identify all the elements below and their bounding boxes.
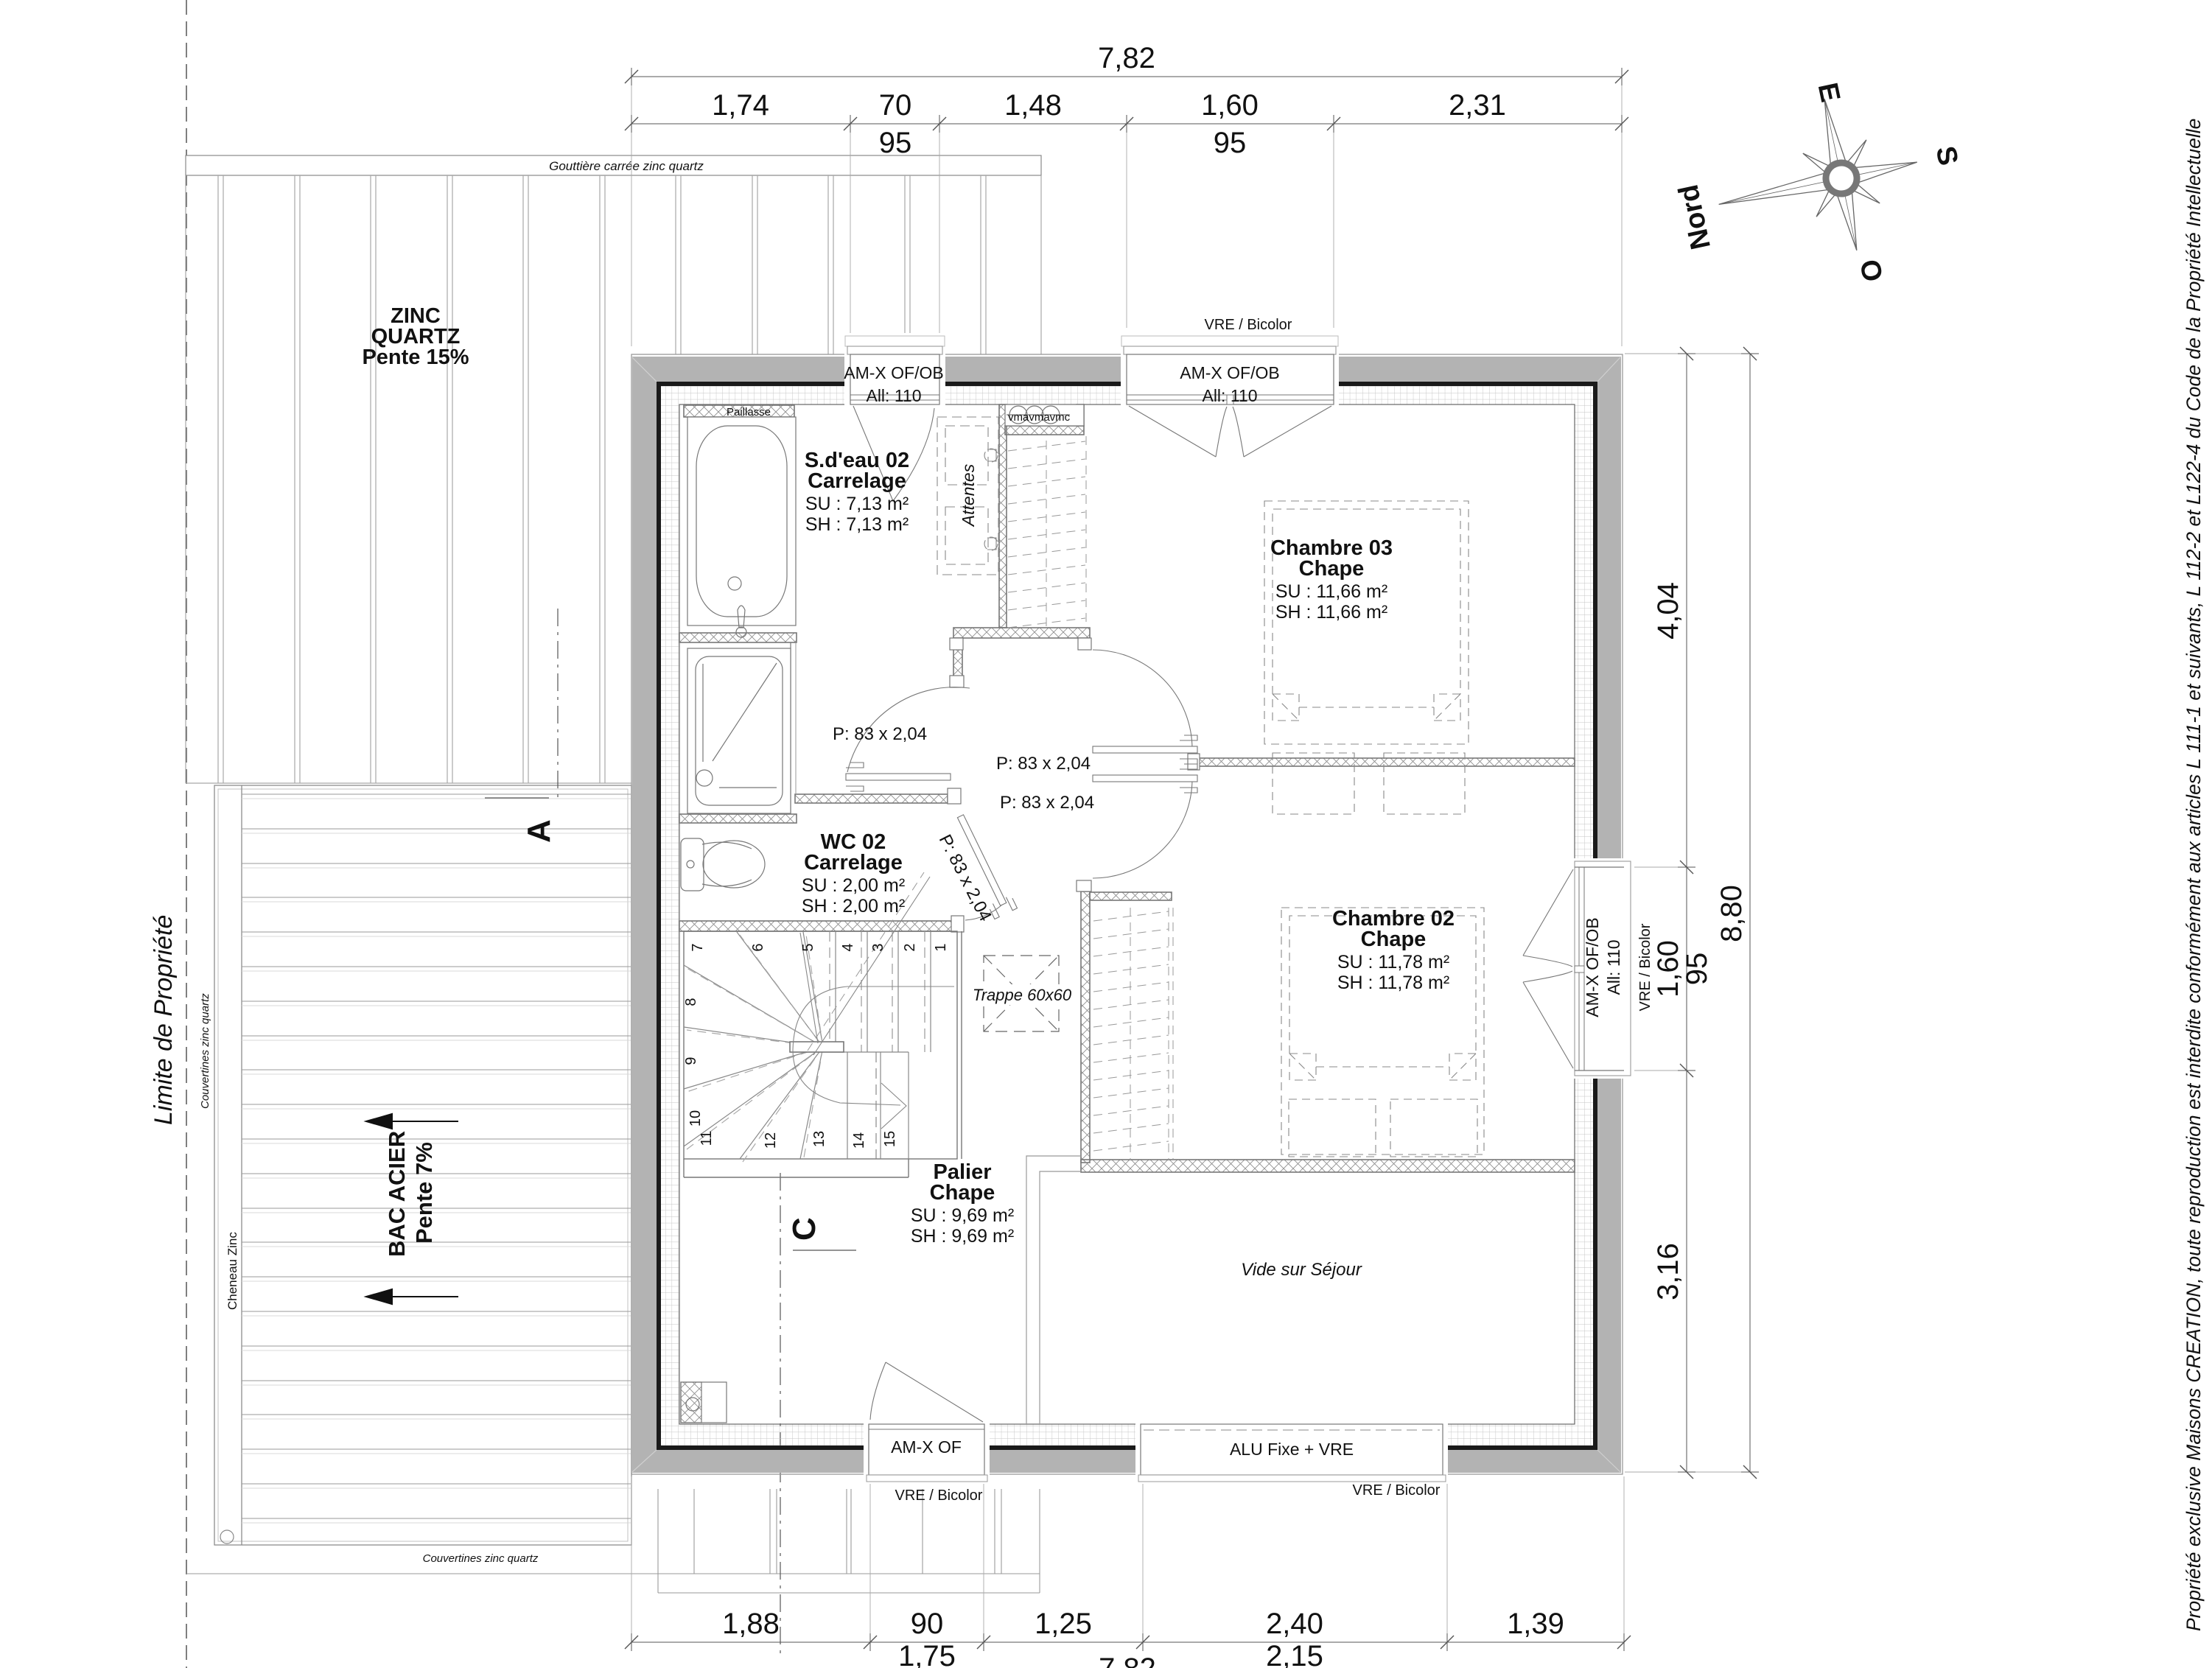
svg-text:vmavmavmc: vmavmavmc xyxy=(1008,411,1071,424)
svg-text:1,39: 1,39 xyxy=(1507,1608,1564,1640)
svg-text:4: 4 xyxy=(840,943,856,951)
svg-text:Pente 15%: Pente 15% xyxy=(362,346,469,369)
svg-text:SU : 7,13 m²: SU : 7,13 m² xyxy=(805,494,909,514)
svg-text:P: 83 x 2,04: P: 83 x 2,04 xyxy=(996,754,1091,774)
svg-text:8,80: 8,80 xyxy=(1715,885,1748,942)
svg-text:10: 10 xyxy=(687,1110,704,1126)
svg-text:VRE / Bicolor: VRE / Bicolor xyxy=(1353,1482,1441,1499)
svg-text:SU : 9,69 m²: SU : 9,69 m² xyxy=(911,1205,1014,1226)
svg-text:P: 83 x 2,04: P: 83 x 2,04 xyxy=(833,724,927,744)
svg-text:1,74: 1,74 xyxy=(712,89,769,122)
svg-text:1,60: 1,60 xyxy=(1652,940,1684,998)
svg-text:All: 110: All: 110 xyxy=(1202,386,1257,405)
svg-text:SH : 7,13 m²: SH : 7,13 m² xyxy=(805,514,909,535)
svg-text:SH : 11,66 m²: SH : 11,66 m² xyxy=(1275,602,1387,623)
svg-text:AM-X OF: AM-X OF xyxy=(891,1437,962,1457)
svg-text:Carrelage: Carrelage xyxy=(804,851,903,875)
svg-text:Vide sur Séjour: Vide sur Séjour xyxy=(1241,1260,1362,1280)
svg-text:VRE / Bicolor: VRE / Bicolor xyxy=(1637,923,1653,1011)
svg-text:Couvertines zinc quartz: Couvertines zinc quartz xyxy=(199,993,211,1109)
svg-text:Pente 7%: Pente 7% xyxy=(411,1142,437,1244)
svg-text:VRE / Bicolor: VRE / Bicolor xyxy=(895,1487,983,1504)
svg-text:P: 83 x 2,04: P: 83 x 2,04 xyxy=(1000,793,1094,813)
svg-text:11: 11 xyxy=(699,1131,715,1146)
svg-text:1: 1 xyxy=(933,943,949,951)
svg-text:VRE / Bicolor: VRE / Bicolor xyxy=(1205,317,1292,333)
svg-text:BAC ACIER: BAC ACIER xyxy=(384,1131,410,1257)
svg-text:Attentes: Attentes xyxy=(959,463,978,528)
svg-text:SH : 9,69 m²: SH : 9,69 m² xyxy=(911,1226,1014,1247)
svg-text:2: 2 xyxy=(902,943,918,951)
svg-text:AM-X OF/OB: AM-X OF/OB xyxy=(1583,917,1602,1017)
svg-text:C: C xyxy=(786,1217,822,1241)
svg-text:7: 7 xyxy=(690,943,706,951)
svg-text:2,40: 2,40 xyxy=(1266,1608,1323,1640)
svg-text:70: 70 xyxy=(879,89,912,122)
svg-text:3,16: 3,16 xyxy=(1652,1243,1684,1300)
svg-text:Propriété exclusive Maisons CR: Propriété exclusive Maisons CREATION, to… xyxy=(2183,119,2205,1631)
svg-text:1,60: 1,60 xyxy=(1201,89,1259,122)
svg-text:SH : 2,00 m²: SH : 2,00 m² xyxy=(802,896,905,917)
svg-text:All: 110: All: 110 xyxy=(866,386,921,405)
svg-text:2,31: 2,31 xyxy=(1449,89,1506,122)
svg-text:Gouttière carrée zinc quartz: Gouttière carrée zinc quartz xyxy=(549,159,704,173)
svg-text:Chape: Chape xyxy=(1299,557,1365,581)
svg-text:All: 110: All: 110 xyxy=(1604,939,1623,995)
svg-text:SU : 11,78 m²: SU : 11,78 m² xyxy=(1337,952,1449,973)
svg-text:Trappe 60x60: Trappe 60x60 xyxy=(973,986,1072,1004)
svg-text:7,82: 7,82 xyxy=(1099,1653,1156,1668)
svg-text:Limite de Propriété: Limite de Propriété xyxy=(150,915,178,1125)
svg-text:AM-X OF/OB: AM-X OF/OB xyxy=(1180,363,1279,382)
svg-text:Couvertines zinc quartz: Couvertines zinc quartz xyxy=(423,1552,539,1565)
svg-text:Chape: Chape xyxy=(930,1181,995,1205)
svg-text:Cheneau Zinc: Cheneau Zinc xyxy=(225,1232,239,1310)
svg-text:95: 95 xyxy=(1214,127,1247,159)
svg-text:Carrelage: Carrelage xyxy=(808,469,906,493)
svg-text:1,48: 1,48 xyxy=(1004,89,1062,122)
svg-text:2,15: 2,15 xyxy=(1266,1640,1323,1668)
svg-text:95: 95 xyxy=(1681,953,1713,986)
svg-text:13: 13 xyxy=(811,1131,827,1147)
svg-text:1,88: 1,88 xyxy=(722,1608,780,1640)
svg-text:14: 14 xyxy=(851,1132,867,1149)
svg-text:SU : 2,00 m²: SU : 2,00 m² xyxy=(802,875,905,896)
svg-text:95: 95 xyxy=(879,127,912,159)
svg-text:4,04: 4,04 xyxy=(1652,582,1684,639)
svg-text:7,82: 7,82 xyxy=(1098,42,1155,74)
svg-text:1,25: 1,25 xyxy=(1035,1608,1092,1640)
svg-text:SH : 11,78 m²: SH : 11,78 m² xyxy=(1337,973,1449,993)
svg-text:Chape: Chape xyxy=(1361,928,1427,951)
svg-text:ALU Fixe + VRE: ALU Fixe + VRE xyxy=(1230,1440,1354,1459)
svg-text:SU : 11,66 m²: SU : 11,66 m² xyxy=(1275,581,1387,602)
svg-text:5: 5 xyxy=(800,943,816,951)
svg-text:9: 9 xyxy=(683,1056,699,1065)
svg-text:A: A xyxy=(521,819,557,843)
svg-text:AM-X OF/OB: AM-X OF/OB xyxy=(844,363,943,382)
svg-text:8: 8 xyxy=(683,998,699,1006)
svg-text:6: 6 xyxy=(750,943,766,951)
svg-text:15: 15 xyxy=(882,1131,898,1147)
svg-text:12: 12 xyxy=(763,1132,779,1149)
svg-text:1,75: 1,75 xyxy=(898,1640,956,1668)
svg-text:3: 3 xyxy=(870,943,886,951)
svg-text:90: 90 xyxy=(911,1608,944,1640)
